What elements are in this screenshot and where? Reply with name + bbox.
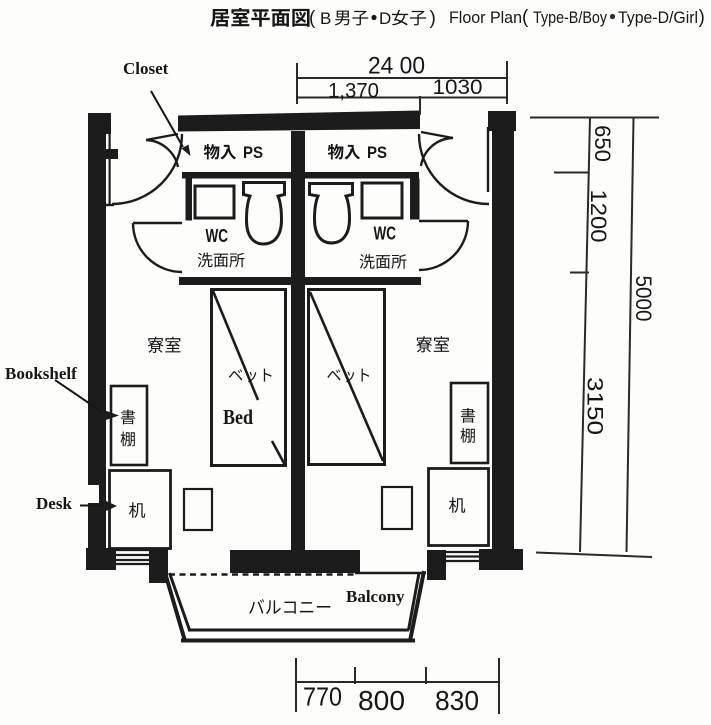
svg-text:1200: 1200	[586, 190, 611, 243]
svg-text:Balcony: Balcony	[346, 587, 405, 606]
svg-text:PS: PS	[243, 144, 263, 162]
svg-text:WC: WC	[206, 226, 229, 246]
svg-text:24 00: 24 00	[368, 53, 425, 80]
svg-text:1030: 1030	[433, 76, 483, 99]
svg-text:D: D	[379, 9, 391, 28]
svg-text:): )	[430, 8, 436, 29]
svg-text:(: (	[309, 8, 316, 29]
svg-text:3150: 3150	[583, 377, 608, 435]
svg-text:1,370: 1,370	[328, 80, 379, 103]
svg-text:Bookshelf: Bookshelf	[5, 364, 77, 383]
svg-text:Bed: Bed	[223, 405, 253, 429]
svg-text:Type-D/Girl: Type-D/Girl	[618, 8, 698, 27]
svg-text:Desk: Desk	[36, 494, 72, 513]
svg-text:Closet: Closet	[123, 59, 169, 78]
svg-text:B: B	[320, 9, 331, 28]
svg-text:PS: PS	[367, 144, 387, 162]
svg-text:Type-B/Boy: Type-B/Boy	[533, 8, 607, 27]
svg-text:650: 650	[590, 125, 615, 162]
svg-text:(: (	[522, 7, 529, 28]
svg-text:WC: WC	[374, 224, 397, 244]
svg-text:770: 770	[303, 682, 342, 712]
svg-text:Floor Plan: Floor Plan	[449, 8, 522, 27]
svg-text:800: 800	[358, 685, 405, 716]
svg-text:5000: 5000	[631, 276, 656, 322]
svg-text:830: 830	[435, 685, 479, 716]
svg-text:): )	[699, 7, 705, 28]
